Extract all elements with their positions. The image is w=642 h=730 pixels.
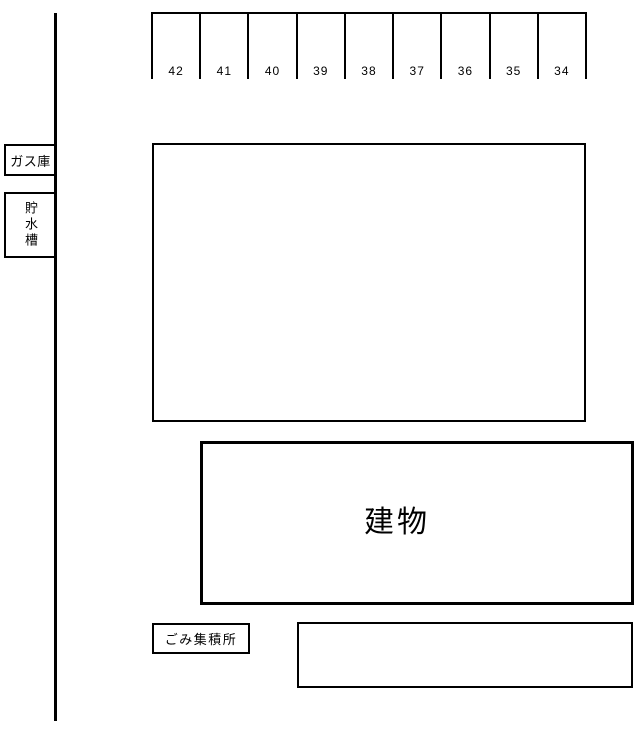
- parking-stall-row: 42 41 40 39 38 37 36 35 34: [151, 12, 587, 79]
- stall-number: 34: [554, 65, 569, 77]
- gas-storage-box: ガス庫: [4, 144, 57, 176]
- parking-stall: 42: [151, 14, 199, 79]
- stall-number: 41: [217, 65, 232, 77]
- parking-stall: 37: [392, 14, 440, 79]
- stall-number: 39: [313, 65, 328, 77]
- building-label: 建物: [364, 508, 430, 538]
- stall-number: 38: [361, 65, 376, 77]
- water-tank-box: 貯水槽: [4, 192, 57, 258]
- parking-stall: 36: [440, 14, 488, 79]
- bottom-structure-rect: [297, 622, 633, 688]
- parking-stall: 35: [489, 14, 537, 79]
- parking-stall: 41: [199, 14, 247, 79]
- stall-number: 35: [506, 65, 521, 77]
- parking-stall: 40: [247, 14, 295, 79]
- stall-number: 42: [168, 65, 183, 77]
- water-tank-label: 貯水槽: [24, 201, 37, 249]
- parking-stall: 39: [296, 14, 344, 79]
- stall-number: 36: [458, 65, 473, 77]
- gas-storage-label: ガス庫: [10, 151, 51, 170]
- garbage-station-label: ごみ集積所: [165, 629, 238, 648]
- site-boundary-line: [54, 13, 57, 721]
- building-rect: 建物: [200, 441, 634, 605]
- stall-number: 37: [410, 65, 425, 77]
- parking-stall: 34: [537, 14, 587, 79]
- garbage-station-box: ごみ集積所: [152, 623, 250, 654]
- open-area-rect: [152, 143, 586, 422]
- site-plan-diagram: 42 41 40 39 38 37 36 35 34 ガス庫 貯水槽: [0, 0, 642, 730]
- parking-stall: 38: [344, 14, 392, 79]
- stall-number: 40: [265, 65, 280, 77]
